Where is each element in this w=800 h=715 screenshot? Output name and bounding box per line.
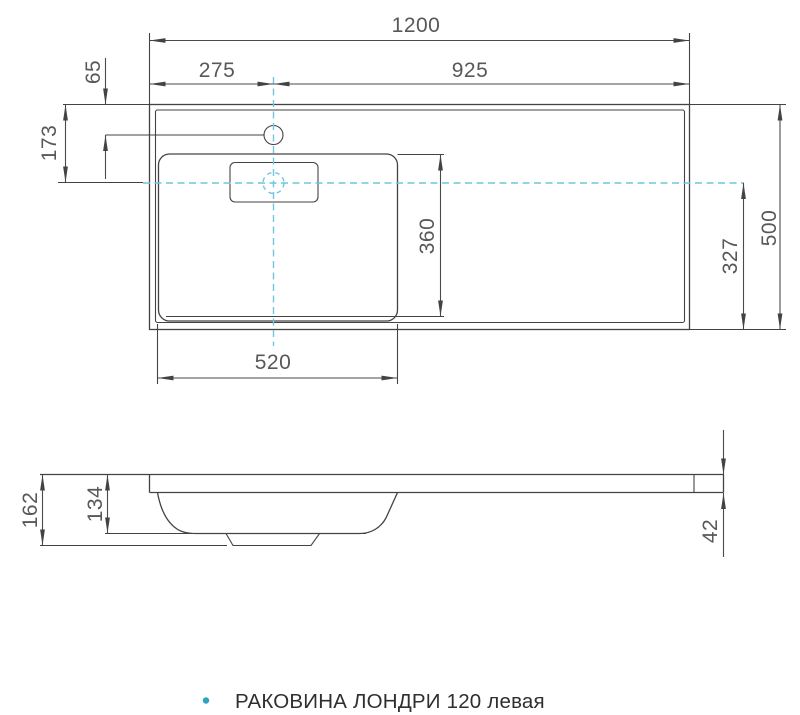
dim-faucet-from-back-edge: 65 xyxy=(82,58,106,179)
side-view: 162 134 42 xyxy=(19,430,724,557)
caption-row: РАКОВИНА ЛОНДРИ 120 левая xyxy=(203,690,545,713)
dim-label-bowl-length: 520 xyxy=(255,351,292,374)
bowl-profile-outline xyxy=(158,493,398,534)
dim-label-faucet-from-back-edge: 65 xyxy=(82,60,105,84)
dim-label-bowl-width: 360 xyxy=(416,218,439,255)
dim-bowl-length: 520 xyxy=(158,351,398,378)
dim-label-worktop-thickness: 42 xyxy=(699,519,722,543)
caption-text: РАКОВИНА ЛОНДРИ 120 левая xyxy=(235,690,545,713)
dim-label-axis-from-front-edge: 327 xyxy=(719,238,742,275)
dim-label-bowl-depth: 134 xyxy=(84,486,107,523)
sink-dimension-drawing: 1200 275 925 65 173 360 327 500 xyxy=(0,0,800,715)
dim-label-overall-depth: 500 xyxy=(758,210,781,247)
technical-drawing-page: 1200 275 925 65 173 360 327 500 xyxy=(0,0,800,715)
dim-overall-width: 1200 xyxy=(150,14,690,41)
dim-bowl-width: 360 xyxy=(416,155,441,317)
dim-faucet-offset-right: 925 xyxy=(274,59,690,84)
dim-label-overall-height: 162 xyxy=(19,492,42,529)
drain-boss-outline xyxy=(226,534,366,546)
dim-overall-depth: 500 xyxy=(758,105,781,330)
dim-label-axis-from-back-edge: 173 xyxy=(38,125,61,162)
dim-worktop-thickness: 42 xyxy=(699,430,724,557)
dim-label-faucet-offset-right: 925 xyxy=(452,59,489,82)
dim-label-faucet-offset-left: 275 xyxy=(199,59,236,82)
countertop-inner-outline xyxy=(156,110,685,323)
countertop-outer-outline xyxy=(150,105,690,330)
dim-axis-from-back-edge: 173 xyxy=(38,105,66,183)
caption-bullet-icon xyxy=(203,697,209,703)
dim-overall-height: 162 xyxy=(19,475,43,546)
top-view: 1200 275 925 65 173 360 327 500 xyxy=(38,14,786,384)
dim-faucet-offset-left: 275 xyxy=(150,59,274,84)
dim-label-overall-width: 1200 xyxy=(392,14,441,37)
dim-bowl-depth: 134 xyxy=(84,475,108,534)
dim-axis-from-front-edge: 327 xyxy=(719,183,744,330)
bowl-outline xyxy=(159,154,398,321)
